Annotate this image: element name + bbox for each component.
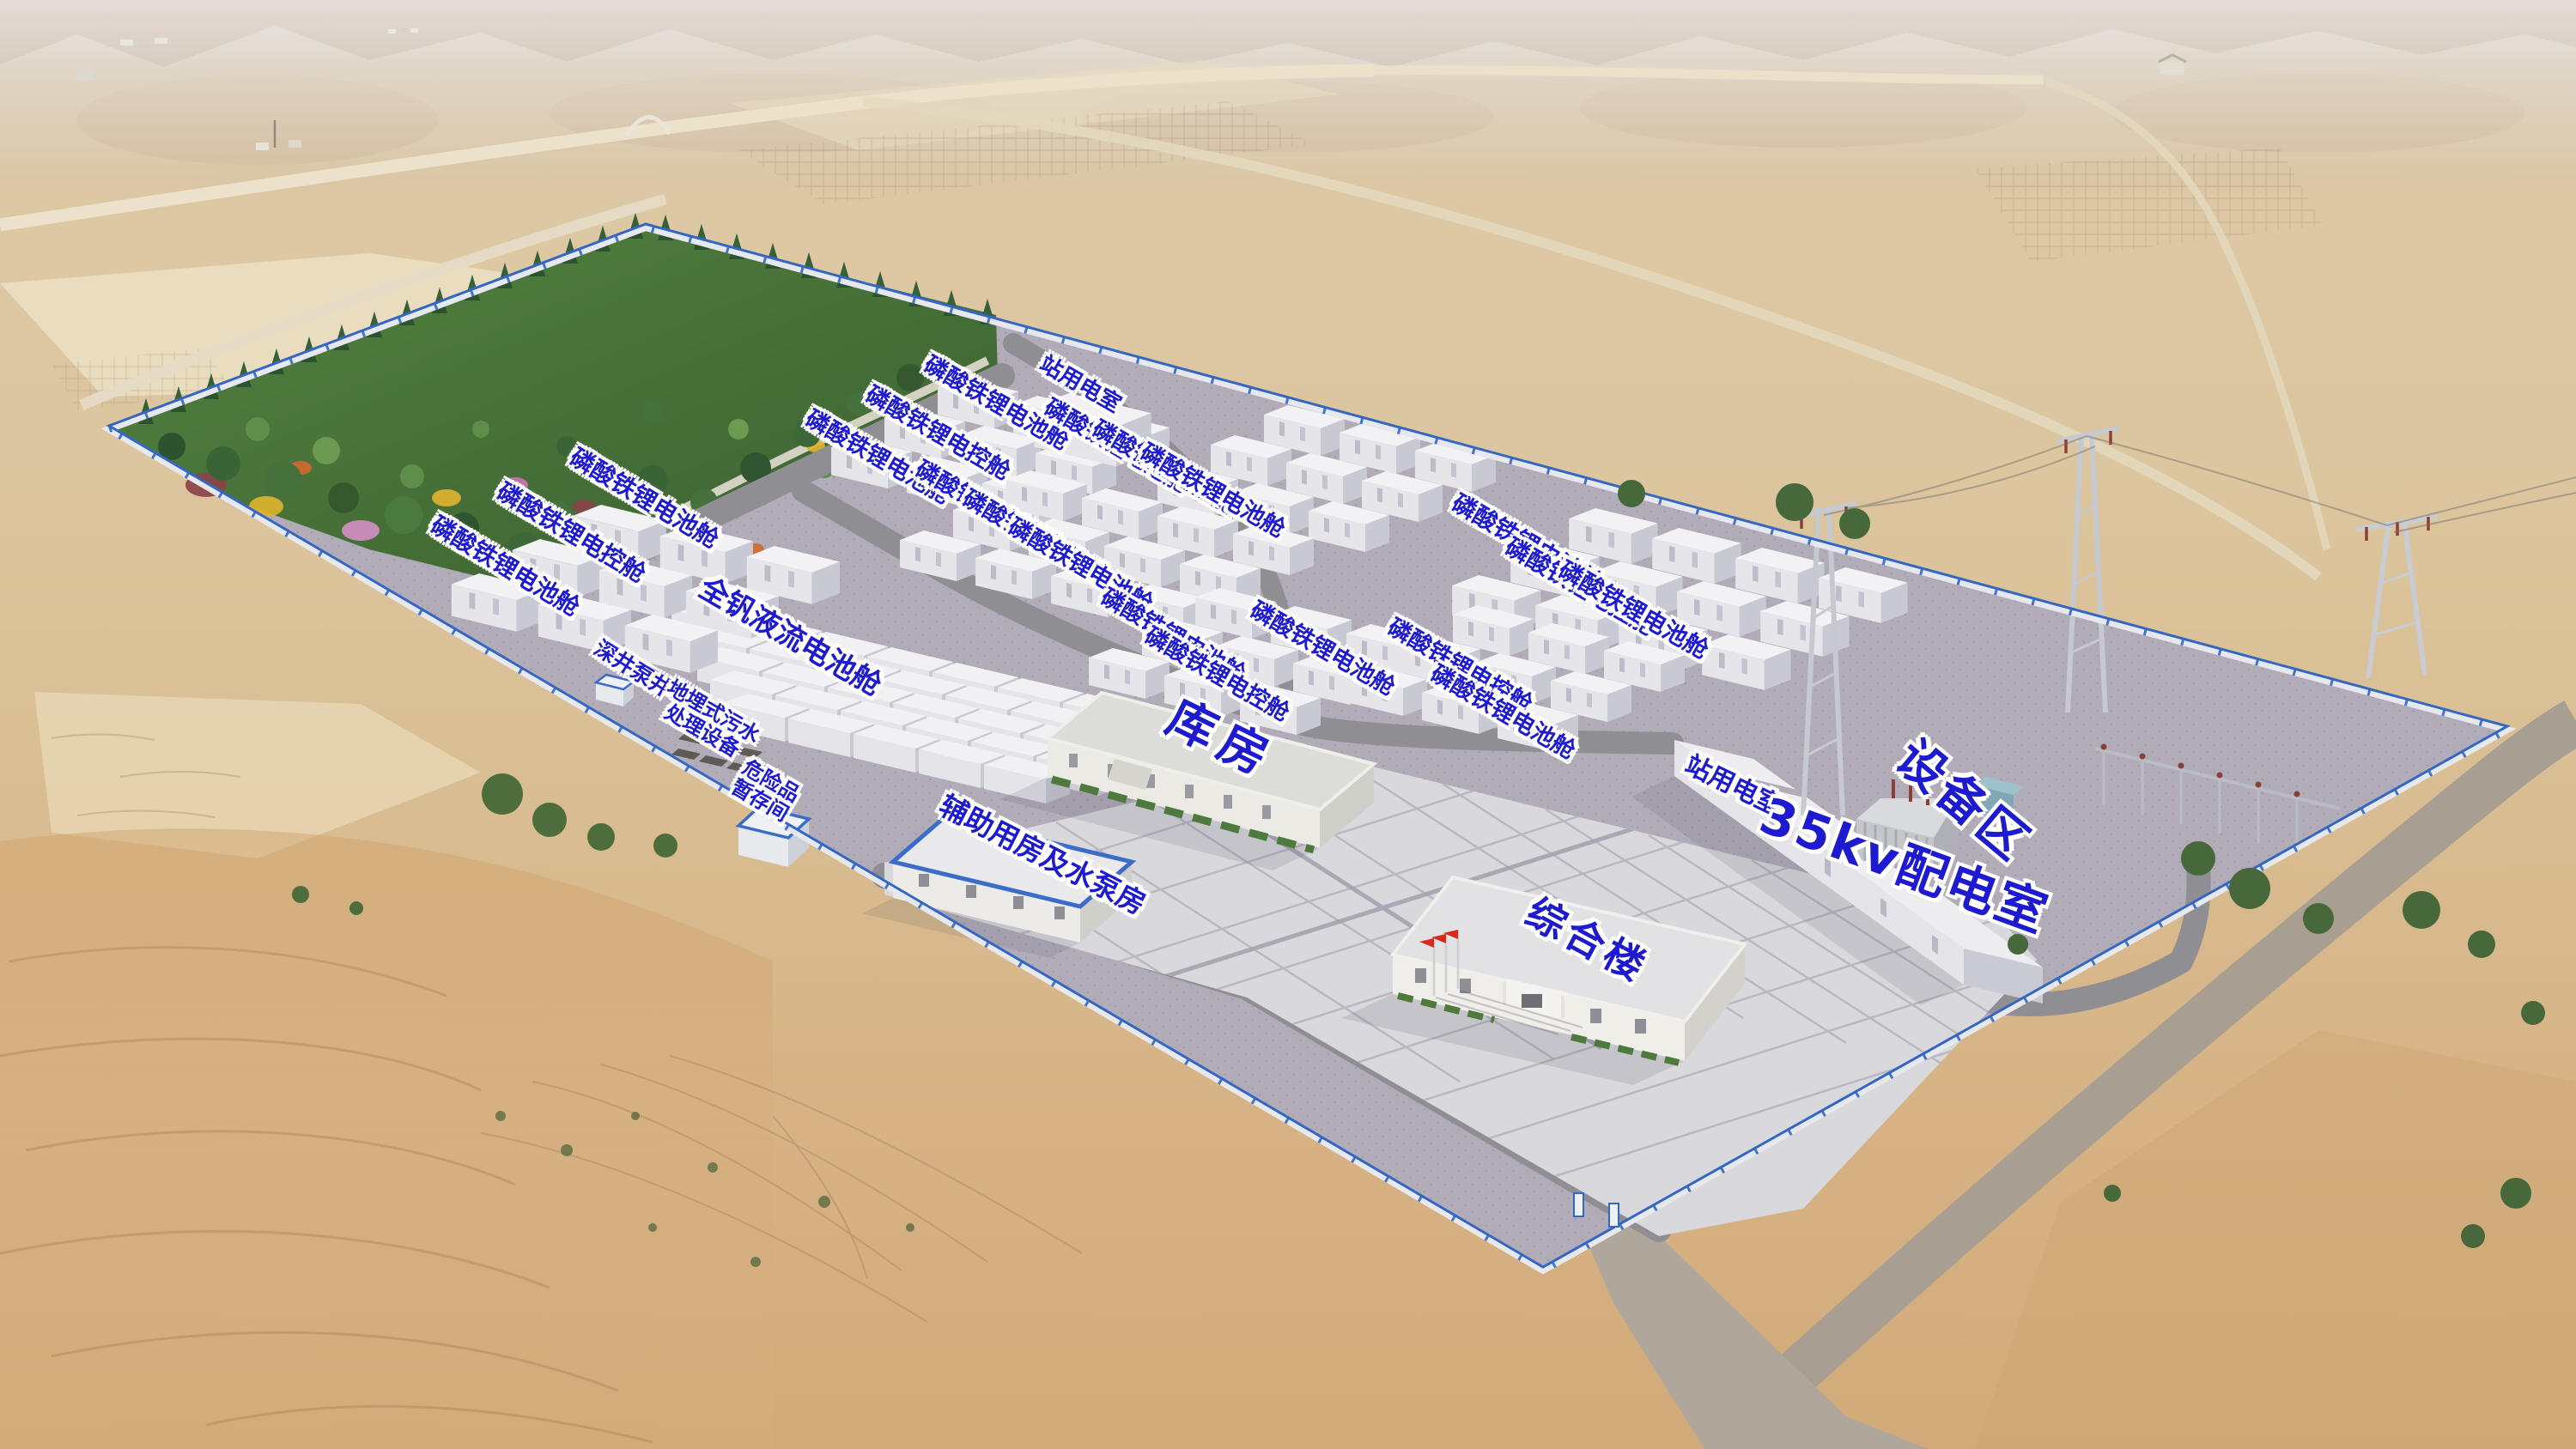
power-lines xyxy=(1824,436,2576,532)
aerial-site-rendering: 磷酸铁锂电池舱 磷酸铁锂电控舱 磷酸铁锂电池舱 站用电室 磷酸铁锂电池舱 磷酸铁… xyxy=(0,0,2576,1449)
scene-graphics xyxy=(0,0,2576,1449)
